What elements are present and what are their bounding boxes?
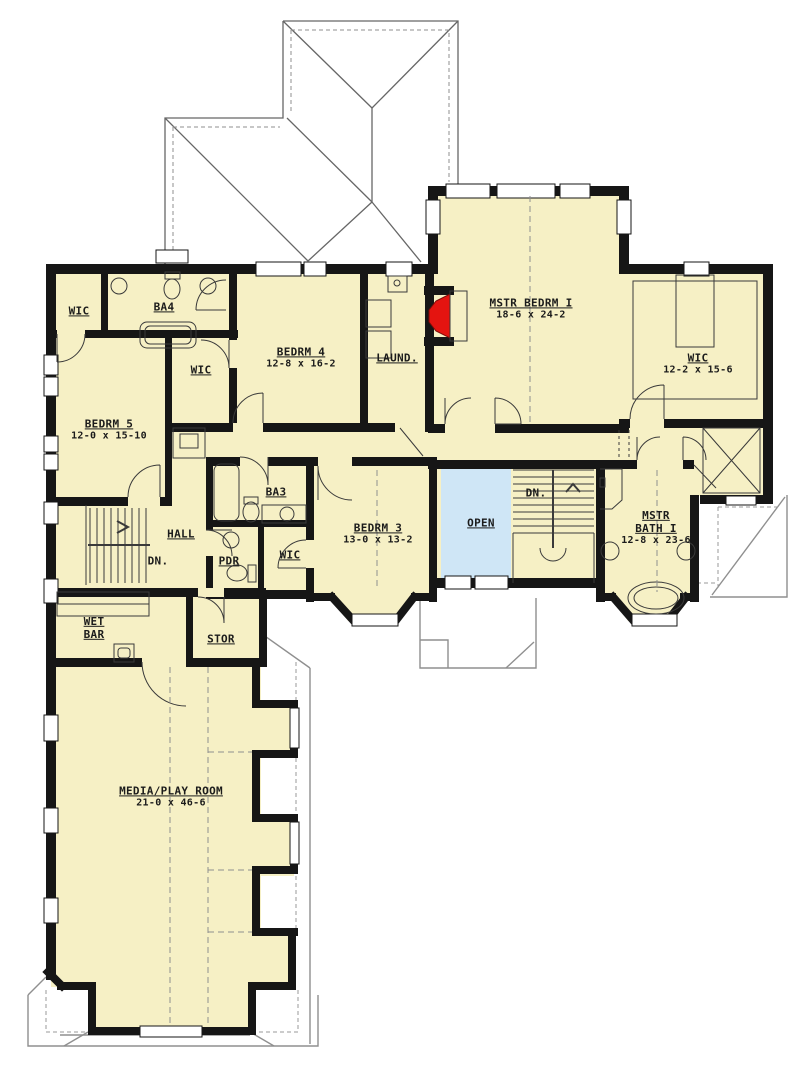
room-label-open: OPEN [467,516,495,529]
stair-label-dn-right: DN. [526,486,547,499]
room-label-wic-mstr: WIC12-2 x 15-6 [663,351,733,376]
room-label-bedrm5: BEDRM 512-0 x 15-10 [71,417,147,442]
room-label-pdr: PDR [219,554,240,567]
room-label-mstr-bedrm: MSTR BEDRM I18-6 x 24-2 [489,296,572,321]
room-label-wic1: WIC [69,304,90,317]
room-label-wic2: WIC [191,363,212,376]
room-label-wic3: WIC [280,548,301,561]
stair-label-dn-left: DN. [148,554,169,567]
floor-plan-page: WIC BA4 WIC BEDRM 412-8 x 16-2 LAUND. MS… [0,0,800,1067]
room-label-stor: STOR [207,632,235,645]
room-label-mstr-bath: MSTRBATH I12-8 x 23-6 [621,509,691,547]
room-label-bedrm3: BEDRM 313-0 x 13-2 [343,521,413,546]
room-label-ba4: BA4 [154,300,175,313]
room-label-wet-bar: WETBAR [84,615,105,641]
room-label-hall: HALL [167,527,195,540]
roof-outline [165,21,458,264]
room-label-ba3: BA3 [266,485,287,498]
room-label-laund: LAUND. [376,351,418,364]
roof-overhang-dashed [173,30,449,256]
room-label-bedrm4: BEDRM 412-8 x 16-2 [266,345,336,370]
room-label-media: MEDIA/PLAY ROOM21-0 x 46-6 [119,784,223,809]
